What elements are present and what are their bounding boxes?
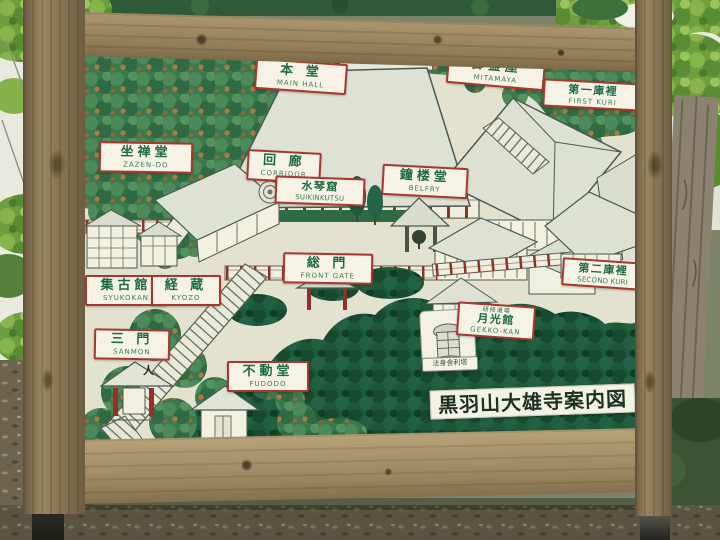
map-illustration bbox=[85, 50, 637, 444]
label-suikinkutsu: 水琴窟 SUIKINKUTSU bbox=[275, 175, 366, 207]
sign-bottom-beam bbox=[76, 428, 643, 504]
person-kanji-mark: 人 bbox=[143, 362, 154, 378]
label-zazen-do: 坐禅堂 ZAZEN-DO bbox=[99, 141, 194, 173]
label-gekko-kan: 研修道場 月光館 GEKKO-KAN bbox=[456, 301, 536, 341]
label-fudodo: 不動堂 FUDODO bbox=[227, 361, 309, 392]
sign-left-post bbox=[23, 0, 85, 514]
label-kyozo: 経 蔵 KYOZO bbox=[151, 275, 221, 306]
label-sanmon: 三 門 SANMON bbox=[94, 328, 171, 360]
label-belfry: 鐘楼堂 BELFRY bbox=[381, 164, 468, 199]
sign-right-post bbox=[635, 0, 672, 516]
label-main-hall: 本 堂 MAIN HALL bbox=[254, 58, 348, 95]
label-first-kuri: 第一庫裡 FIRST KURI bbox=[542, 78, 643, 112]
label-sharito: 法身舎利塔 bbox=[422, 356, 478, 372]
photo-scene: 本 堂 MAIN HALL 御霊屋 MITAMAYA 第一庫裡 FIRST KU… bbox=[0, 0, 720, 540]
map-board: 本 堂 MAIN HALL 御霊屋 MITAMAYA 第一庫裡 FIRST KU… bbox=[85, 50, 637, 444]
label-front-gate: 総 門 FRONT GATE bbox=[283, 252, 374, 284]
